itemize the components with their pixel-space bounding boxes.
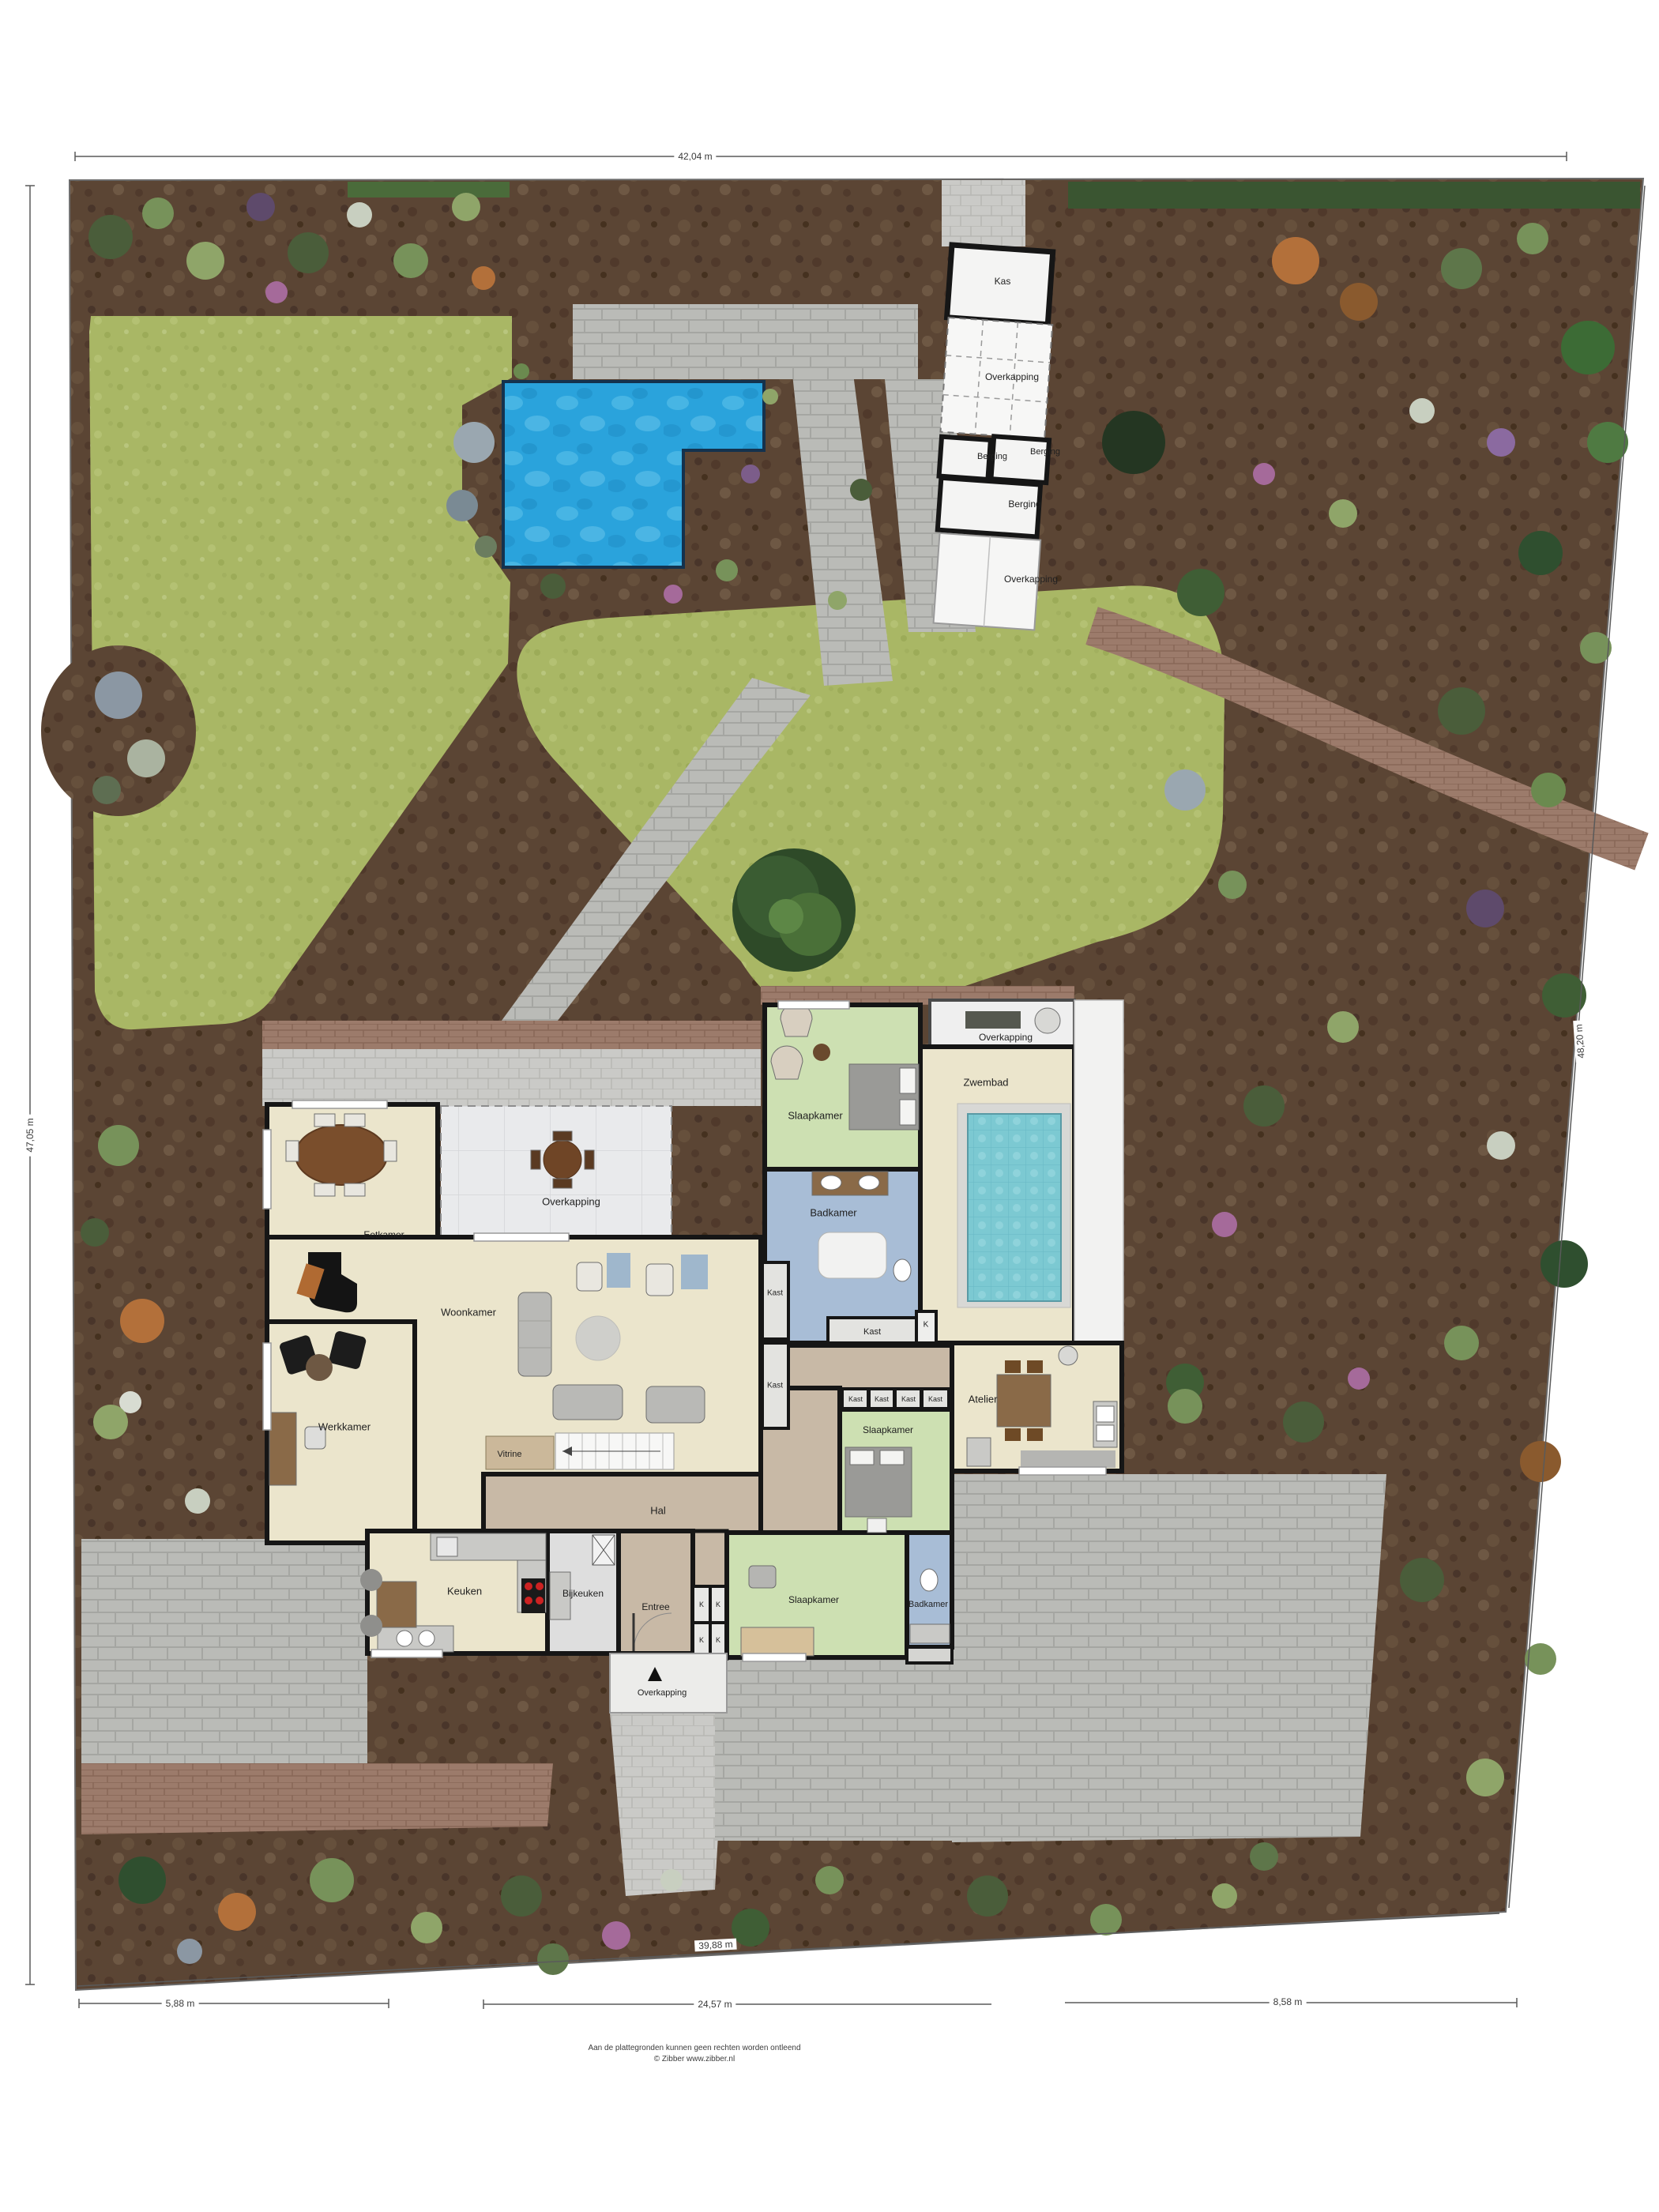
terrace-south: [715, 1659, 952, 1841]
closet-kast-5: [869, 1389, 894, 1409]
paved-area-pool: [573, 304, 828, 379]
closet-kast-6: [895, 1389, 921, 1409]
utility-strip: [907, 1647, 952, 1663]
room-berging-1: [939, 437, 991, 480]
closet-k-2: [693, 1586, 710, 1623]
room-kas: [947, 245, 1053, 325]
room-hal-entry: [693, 1531, 727, 1588]
closet-k-1: [916, 1311, 936, 1343]
closet-kast-4: [842, 1389, 868, 1409]
brick-band-bottom: [81, 1763, 553, 1834]
terrace-southeast: [952, 1474, 1386, 1842]
hedge: [1068, 182, 1640, 209]
tree: [732, 848, 856, 972]
room-berging-2: [991, 436, 1049, 483]
hedge: [348, 182, 510, 197]
porch-overkapping: [610, 1653, 727, 1713]
room-overkapping-top: [940, 318, 1052, 439]
terrace-kitchen: [81, 1539, 367, 1763]
closet-kast-2: [828, 1318, 916, 1343]
path-porch: [610, 1713, 725, 1896]
room-hal-corridor: [483, 1474, 761, 1533]
terrace-east: [1074, 1000, 1123, 1343]
site-plan-page: KasOverkappingBergingBergingBergingOverk…: [0, 0, 1659, 2212]
path-top: [942, 180, 1025, 246]
closet-k-3: [710, 1586, 727, 1623]
room-berging-3: [938, 478, 1040, 537]
closet-kast-1: [762, 1262, 788, 1339]
terrace-front-left: [262, 1049, 761, 1106]
paved-area-pool2: [792, 304, 918, 379]
site-plan-figure: [0, 0, 1659, 2212]
closet-kast-7: [922, 1389, 949, 1409]
closet-kast-3: [762, 1343, 788, 1428]
brick-strip-house-left: [262, 1021, 761, 1049]
room-entree: [619, 1531, 693, 1653]
